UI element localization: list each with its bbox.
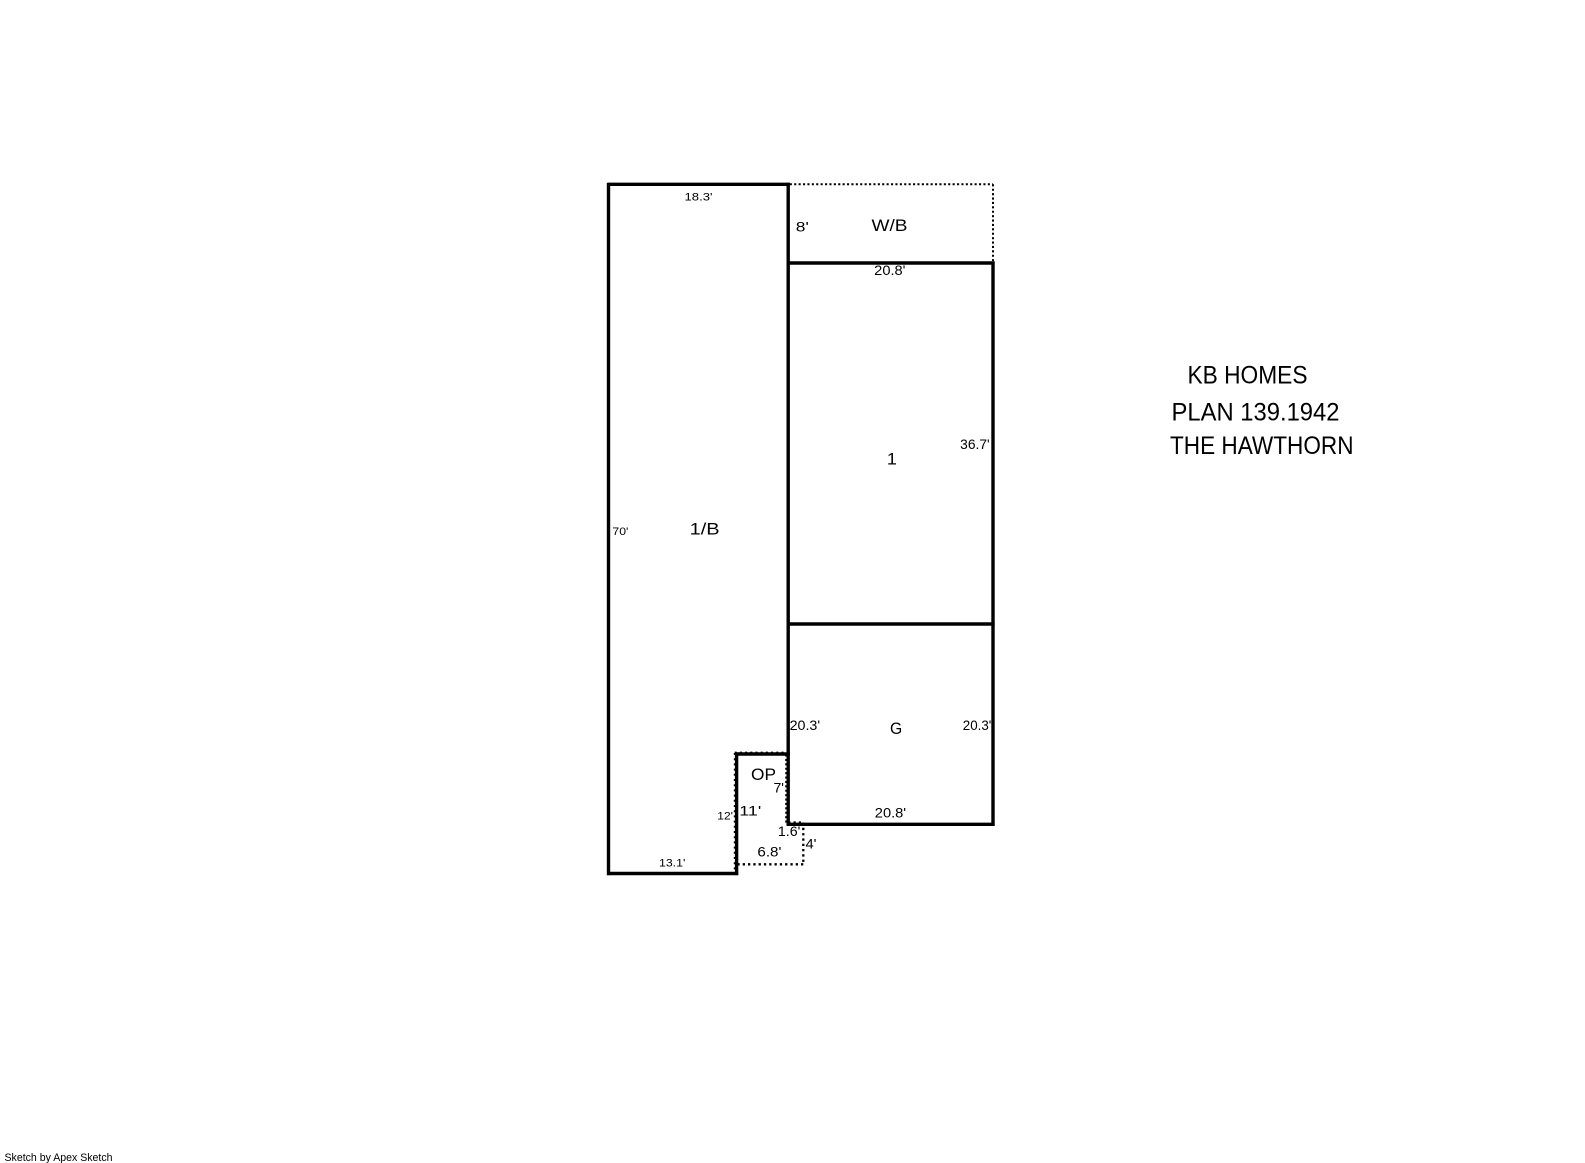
svg-text:20.8': 20.8' — [875, 805, 906, 820]
svg-text:12': 12' — [717, 811, 733, 823]
svg-text:11': 11' — [739, 804, 761, 819]
svg-text:8': 8' — [796, 219, 809, 234]
svg-text:1: 1 — [887, 449, 897, 468]
svg-text:OP: OP — [751, 765, 776, 784]
svg-text:G: G — [890, 719, 902, 738]
svg-text:18.3': 18.3' — [685, 191, 713, 203]
svg-text:13.1': 13.1' — [659, 858, 685, 870]
svg-text:20.8': 20.8' — [874, 263, 905, 278]
svg-text:Sketch by Apex Sketch: Sketch by Apex Sketch — [5, 1152, 113, 1163]
svg-text:6.8': 6.8' — [757, 845, 781, 860]
svg-text:1.6': 1.6' — [778, 824, 801, 839]
svg-text:20.3': 20.3' — [963, 718, 992, 733]
svg-text:KB HOMES: KB HOMES — [1188, 362, 1308, 390]
svg-text:PLAN 139.1942: PLAN 139.1942 — [1172, 399, 1340, 427]
svg-text:20.3': 20.3' — [790, 718, 821, 733]
svg-text:THE HAWTHORN: THE HAWTHORN — [1170, 432, 1354, 460]
svg-text:4': 4' — [806, 837, 817, 852]
svg-text:1/B: 1/B — [690, 520, 720, 539]
svg-text:36.7': 36.7' — [960, 437, 990, 452]
svg-text:W/B: W/B — [872, 216, 908, 235]
svg-text:70': 70' — [612, 526, 628, 538]
